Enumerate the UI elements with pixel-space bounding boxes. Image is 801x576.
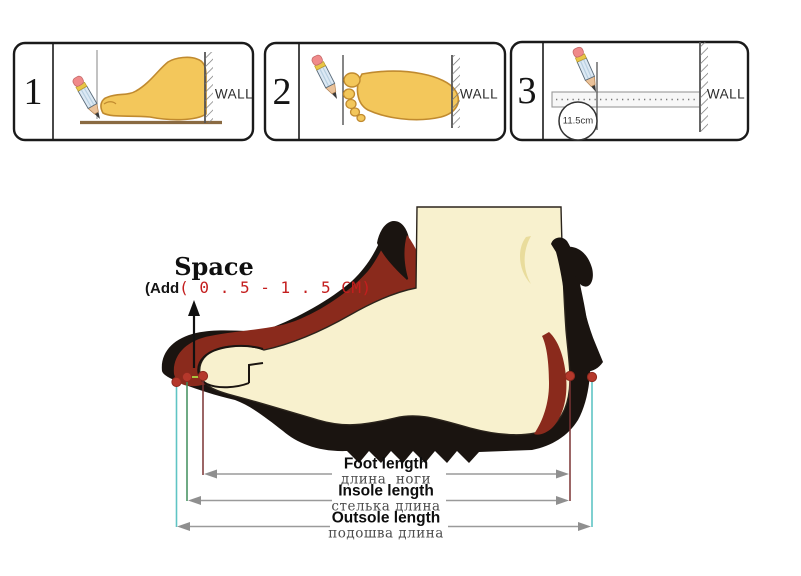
shoe-sizing-infographic: 1 2 3 WALL WALL WALL 11.5cm Space (Add (…: [0, 0, 801, 576]
wall-label-1: WALL: [215, 87, 253, 101]
toe-5: [357, 115, 365, 122]
marker-dot: [182, 372, 191, 381]
wall-label-2: WALL: [460, 87, 498, 101]
measure-arrow-icon: [556, 496, 569, 505]
measure-arrow-icon: [204, 470, 217, 479]
toe-2: [344, 89, 355, 99]
boot-cross-section: [162, 207, 603, 463]
outsole-length-label-en: Outsole length: [332, 510, 441, 526]
marker-dot: [172, 377, 181, 386]
space-title: Space: [174, 255, 254, 279]
measure-arrow-icon: [188, 496, 201, 505]
step-number-1: 1: [24, 73, 43, 111]
outsole-length-label-ru: подошва длина: [328, 527, 444, 541]
foot-length-label-en: Foot length: [344, 456, 428, 472]
up-arrowhead-icon: [188, 300, 200, 316]
marker-dot: [565, 371, 574, 380]
marker-dot: [198, 371, 207, 380]
wall-hatch-icon: [452, 55, 460, 128]
measure-arrow-icon: [556, 470, 569, 479]
space-add-range: ( 0 . 5 - 1 . 5 CM): [179, 278, 372, 297]
measure-arrow-icon: [177, 522, 190, 531]
marker-dot: [587, 372, 596, 381]
toe-3: [346, 100, 356, 109]
toe-big: [344, 73, 360, 87]
ruler-reading-label: 11.5cm: [563, 116, 593, 126]
step-number-3: 3: [518, 72, 537, 110]
space-add-prefix: (Add: [145, 280, 179, 297]
space-allowance-note: (Add ( 0 . 5 - 1 . 5 CM): [145, 278, 372, 297]
wall-label-3: WALL: [707, 87, 745, 101]
measure-arrow-icon: [578, 522, 591, 531]
wall-hatch-icon: [205, 52, 213, 123]
step-number-2: 2: [273, 73, 292, 111]
insole-length-label-en: Insole length: [338, 483, 434, 499]
